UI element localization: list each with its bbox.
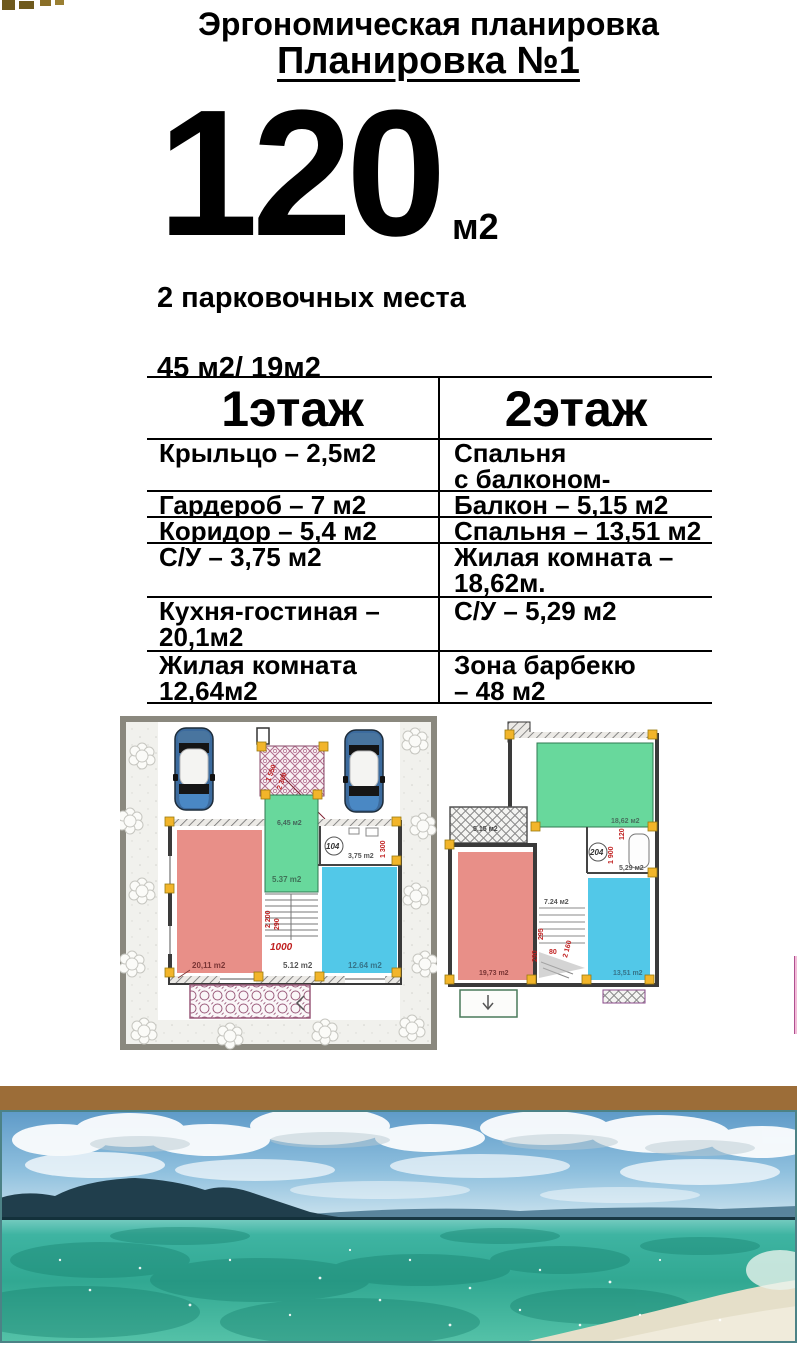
room-area-label: 7.24 м2	[544, 899, 569, 906]
wall-hatching	[510, 732, 657, 738]
layout-sheet: Эргономическая планировка Планировка №1 …	[0, 0, 797, 1350]
dim-label: 295	[538, 928, 545, 940]
small-balcony	[603, 990, 645, 1003]
room-area-label: 12.64 m2	[348, 961, 382, 970]
dim-label: 1 300	[380, 840, 387, 858]
floor2-header: 2этаж	[438, 376, 712, 438]
dim-label: 1 900	[608, 846, 615, 864]
car-icon	[173, 728, 215, 810]
room-bedroom-red	[458, 852, 533, 980]
table-cell: С/У – 5,29 м2	[438, 596, 712, 650]
corner-artifact	[2, 0, 68, 12]
table-cell: Жилая комната – 18,62м.	[438, 542, 712, 596]
room-area-label: 19,73 m2	[479, 970, 509, 977]
table-cell: Спальня – 13,51 м2	[438, 516, 712, 542]
beach-photo	[0, 1110, 797, 1343]
dim-label: 2 200	[265, 910, 272, 928]
bathtub	[629, 834, 649, 868]
balcony	[450, 807, 527, 843]
parking-line1: 2 парковочных места	[157, 282, 466, 314]
table-cell: Коридор – 5,4 м2	[147, 516, 438, 542]
room-area-label: 20,11 m2	[192, 961, 226, 970]
table-cell: Гардероб – 7 м2	[147, 490, 438, 516]
room-bedroom-green	[537, 743, 653, 827]
table-cell: С/У – 3,75 м2	[147, 542, 438, 596]
dim-label: 290	[532, 950, 539, 962]
floors-table: 1этаж 2этаж Крыльцо – 2,5м2 Спальня с ба…	[147, 376, 712, 704]
room-number: 204	[589, 848, 604, 857]
room-area-label: 13,51 m2	[613, 970, 643, 977]
floor1-header: 1этаж	[147, 376, 438, 438]
room-area-label: 18,62 м2	[611, 818, 640, 825]
dim-label: 120	[619, 828, 626, 840]
dim-label: 290	[274, 918, 281, 930]
floor-plan-1: 1 550 2 300 6,45 м2 5.37 m2 20,11 m2 104…	[120, 716, 437, 1050]
room-area-label: 3,75 m2	[348, 853, 374, 860]
room-area-label: 5,29 м2	[619, 865, 644, 872]
car-icon	[343, 730, 385, 812]
room-kitchen-living	[177, 830, 262, 973]
dim-label: 1000	[270, 942, 293, 953]
room-area-label: 5,15 м2	[473, 826, 498, 833]
table-cell: Зона барбекю – 48 м2	[438, 650, 712, 702]
table-cell: Кухня-гостиная – 20,1м2	[147, 596, 438, 650]
room-bedroom-blue	[588, 878, 650, 980]
table-cell: Крыльцо – 2,5м2	[147, 438, 438, 490]
room-area-label: 5.12 m2	[283, 961, 313, 970]
page-title: Эргономическая планировка	[60, 6, 797, 43]
room-area-label: 6,45 м2	[277, 820, 302, 827]
table-cell: Спальня с балконом- 19,73м2	[438, 438, 712, 490]
room-living	[322, 867, 397, 973]
total-area-unit: м2	[452, 206, 499, 248]
room-number: 104	[326, 842, 340, 851]
divider-bar	[0, 1086, 797, 1110]
table-cell: Балкон – 5,15 м2	[438, 490, 712, 516]
table-cell: Жилая комната 12,64м2	[147, 650, 438, 702]
parking-info: 2 парковочных места 45 м2/ 19м2	[157, 281, 466, 386]
chimney	[257, 728, 269, 744]
total-area-value: 120	[158, 84, 440, 264]
dim-label: 80	[549, 949, 557, 956]
terrace	[190, 985, 310, 1018]
floor-plan-2: 18,62 м2 5,15 м2 19,73 m2 204 5,29 м2 1 …	[443, 712, 692, 1022]
room-area-label: 5.37 m2	[272, 875, 302, 884]
